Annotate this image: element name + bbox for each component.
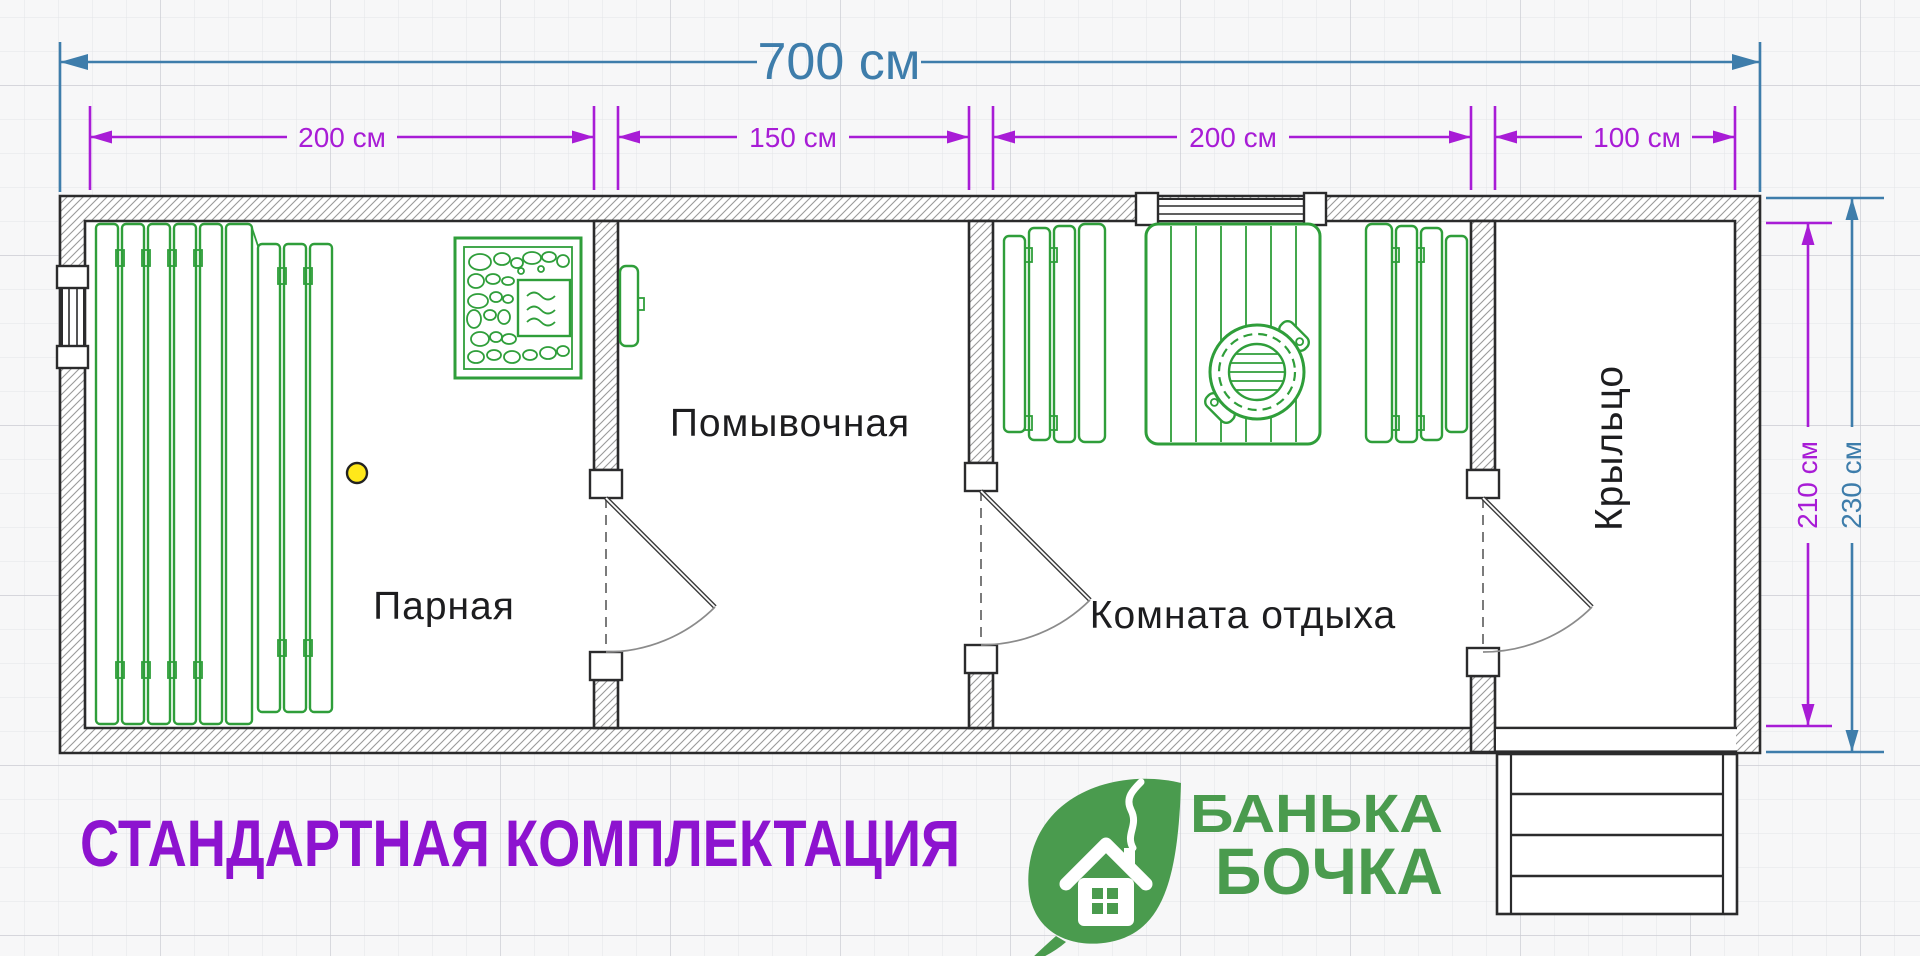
table-with-tub-icon [1146, 224, 1320, 444]
light-point-icon [347, 463, 367, 483]
total-width-label: 700 см [758, 33, 921, 91]
svg-text:200 см: 200 см [1189, 122, 1277, 153]
porch-label: Крыльцо [1588, 365, 1631, 531]
svg-text:200 см: 200 см [298, 122, 386, 153]
lounge-bench-left-icon [1004, 224, 1105, 442]
inner-height-label: 210 см [1792, 441, 1823, 529]
logo-word-2: БОЧКА [1215, 834, 1443, 908]
floor-plan-page: Парная Помывочная [0, 0, 1920, 956]
steam-room-label: Парная [373, 585, 515, 628]
lounge-room-label: Комната отдыха [1090, 594, 1396, 637]
lounge-bench-right-icon [1366, 224, 1467, 442]
window-steam-left-wall [57, 266, 88, 368]
porch-steps-icon [1497, 754, 1737, 914]
outer-height-label: 230 см [1836, 441, 1867, 529]
svg-text:150 см: 150 см [749, 122, 837, 153]
washing-room-label: Помывочная [670, 402, 910, 445]
footer-heading: СТАНДАРТНАЯ КОМПЛЕКТАЦИЯ [80, 806, 960, 880]
stove-icon [455, 238, 581, 378]
steam-bench-icon [96, 224, 332, 724]
svg-text:100 см: 100 см [1593, 122, 1681, 153]
